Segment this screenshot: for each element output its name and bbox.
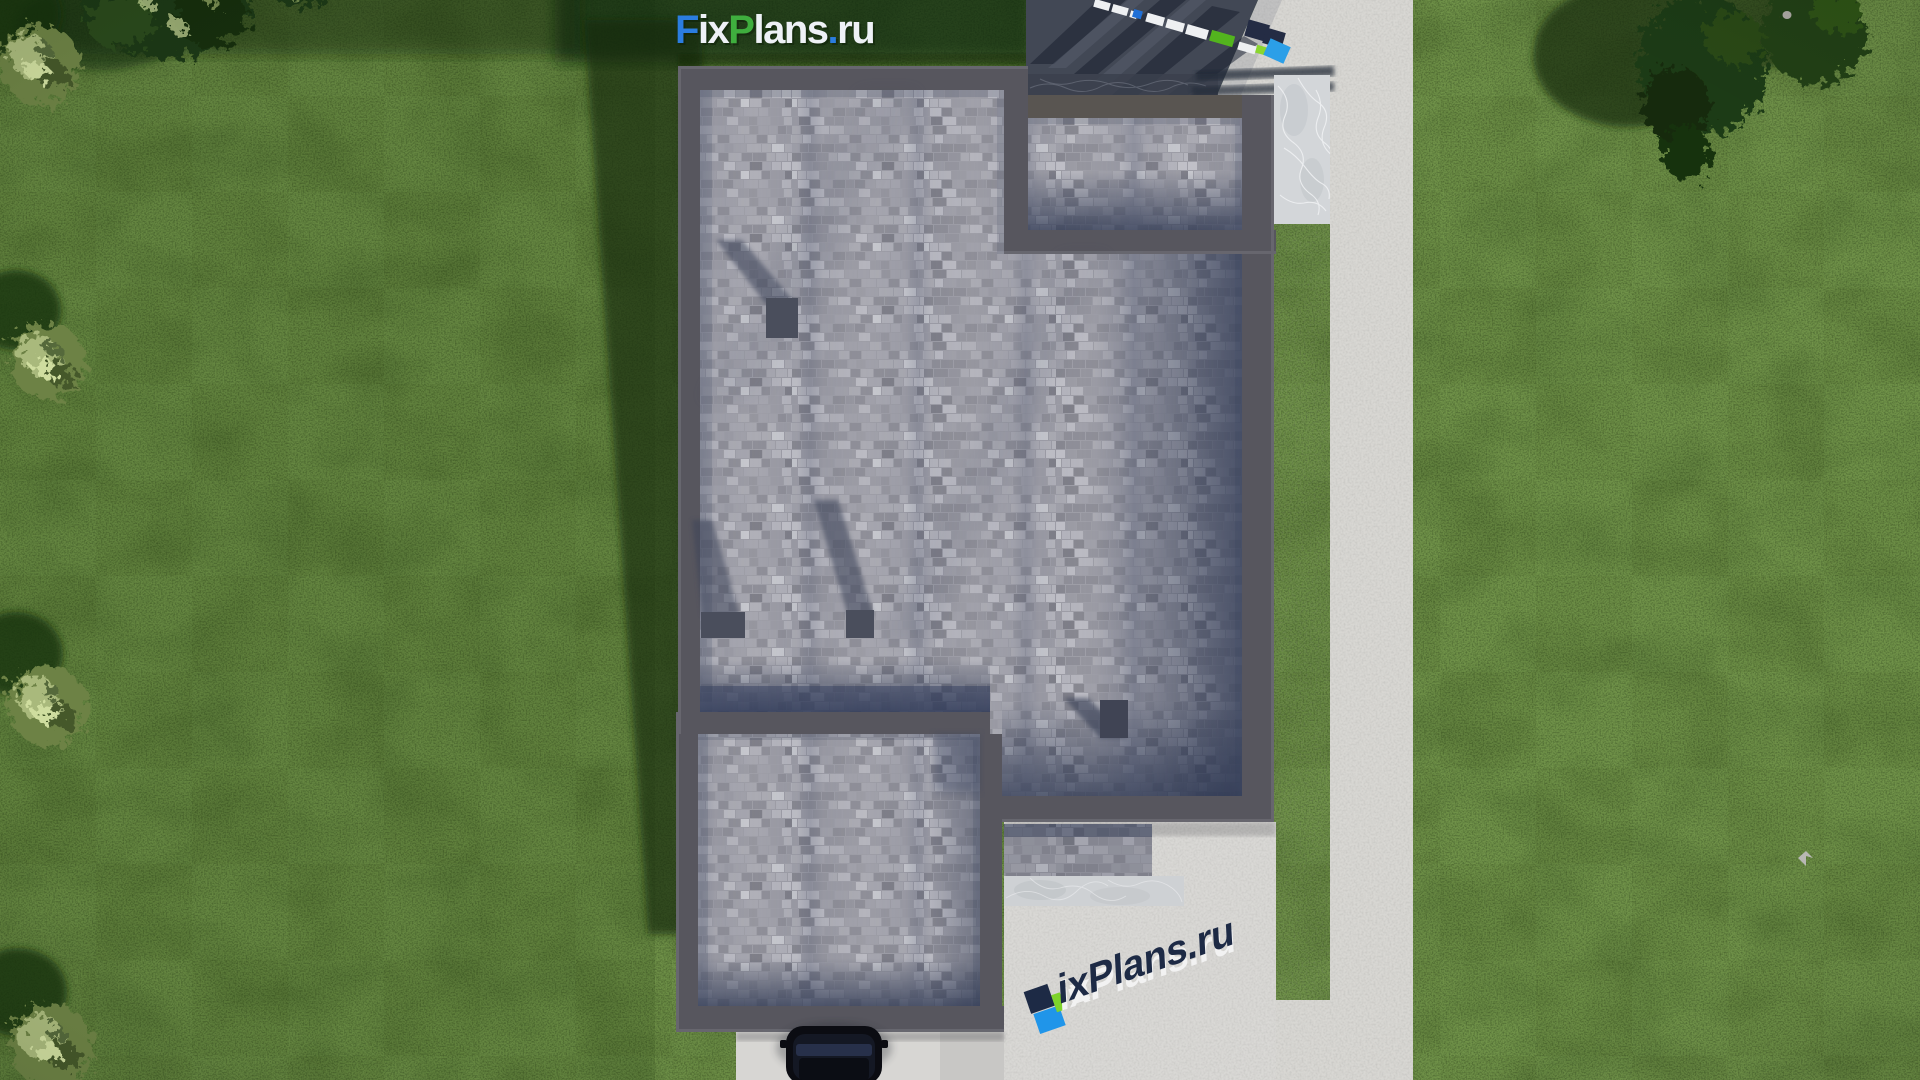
svg-text:FixPlans.ru: FixPlans.ru <box>675 8 874 52</box>
